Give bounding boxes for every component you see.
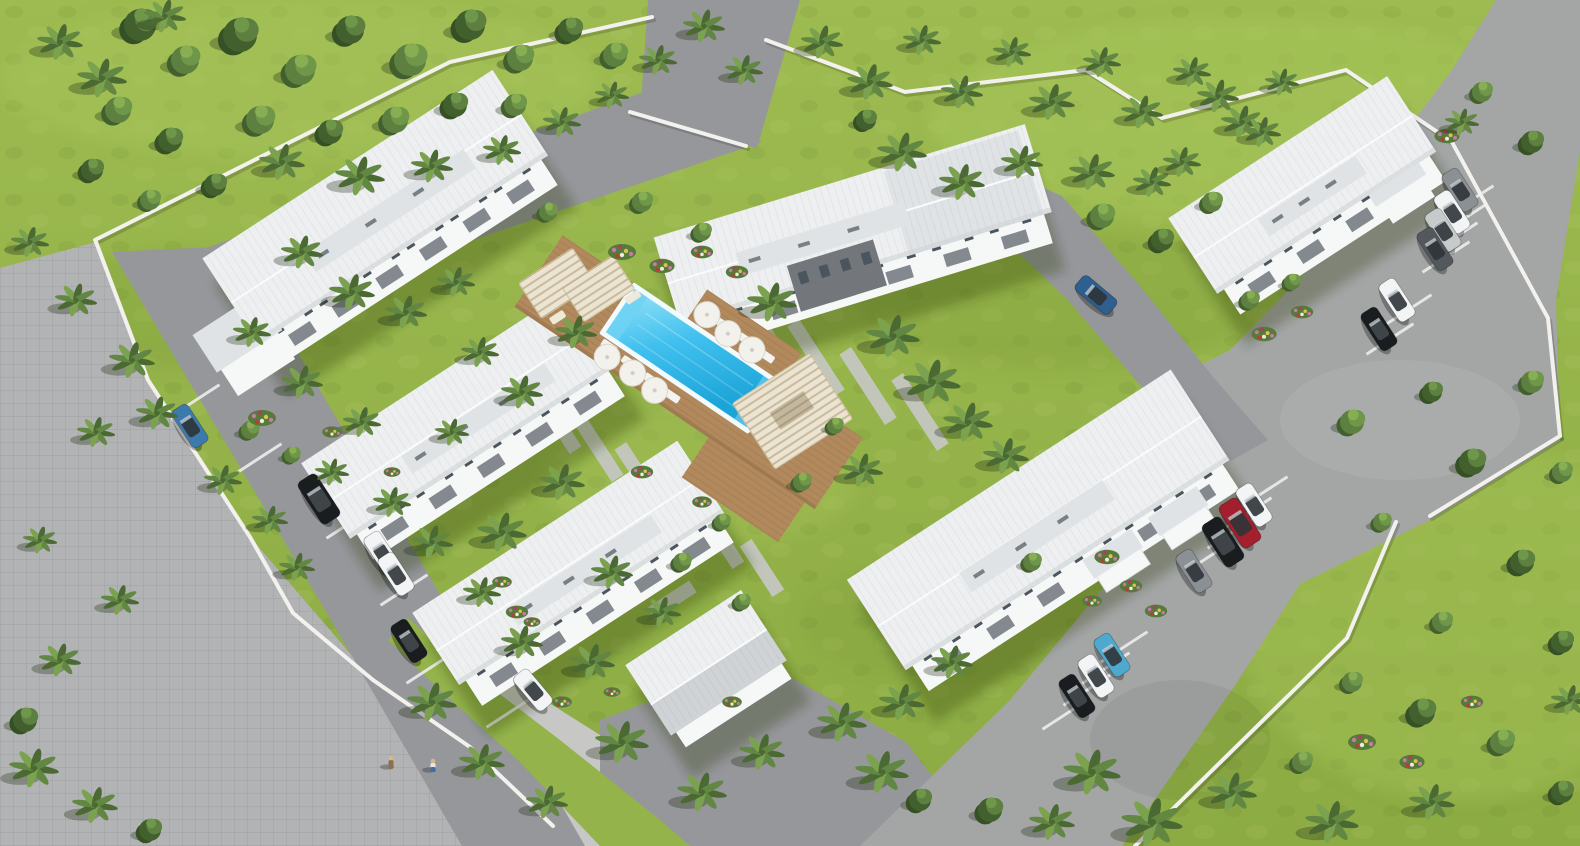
flower-bed (649, 259, 674, 273)
flower-bed (726, 266, 748, 279)
flower-bed (1348, 734, 1376, 750)
flower-bed (608, 244, 636, 260)
flower-bed (691, 246, 713, 259)
flower-bed (604, 687, 621, 697)
flower-bed (1251, 327, 1276, 341)
flower-bed (1120, 580, 1142, 593)
flower-bed (552, 696, 572, 707)
flower-bed (1461, 696, 1483, 709)
aerial-render (0, 0, 1580, 846)
flower-bed (524, 617, 541, 627)
flower-bed (1291, 306, 1313, 319)
flower-bed (722, 696, 742, 707)
flower-bed (384, 467, 401, 477)
flower-bed (692, 496, 712, 507)
flower-bed (631, 466, 653, 479)
flower-bed (506, 606, 528, 619)
flower-bed (1399, 755, 1424, 769)
flower-bed (1082, 595, 1102, 606)
flower-bed (322, 426, 342, 437)
render-canvas (0, 0, 1580, 846)
flower-bed (1145, 605, 1167, 618)
flower-bed (492, 576, 512, 587)
flower-bed (248, 410, 276, 426)
flower-bed (1094, 550, 1119, 564)
